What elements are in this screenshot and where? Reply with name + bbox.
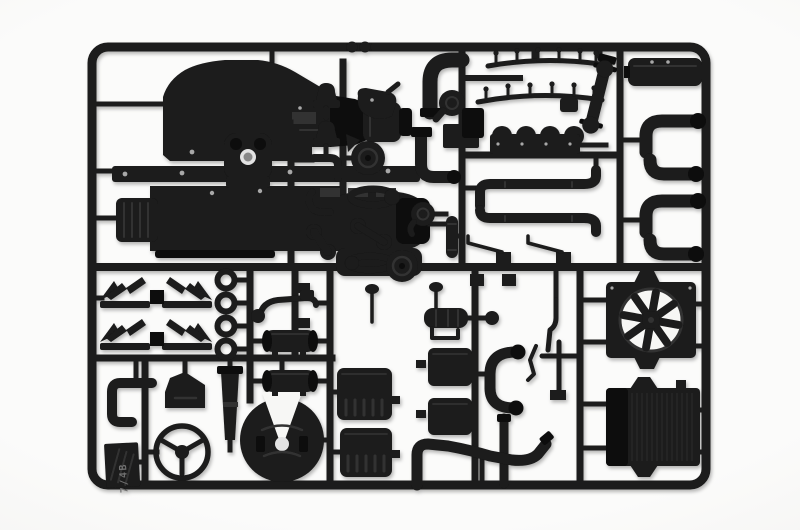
- air-tank-part: [262, 330, 318, 396]
- s-bend-exhaust-pipe-part: [417, 430, 555, 485]
- ball-joint-part: [476, 311, 499, 325]
- washer-ring-part: [218, 272, 235, 358]
- mud-flap-bracket-part: [100, 277, 212, 350]
- steering-wheel-part: [156, 426, 208, 478]
- brake-drum-part: [386, 250, 418, 282]
- down-pipe-part: [497, 414, 511, 484]
- air-dryer-cylinder-part: [446, 216, 458, 258]
- valve-cover-top-part: [624, 58, 702, 86]
- gear-lever-part: [468, 236, 571, 265]
- box-panel-part: [416, 348, 472, 435]
- battery-step-panel-part: [337, 368, 400, 477]
- valve-cover-part: [490, 126, 584, 154]
- sprue-illustration: 7/4B: [0, 0, 800, 530]
- intake-elbow-part: [646, 113, 706, 262]
- small-muffler-part: [424, 308, 474, 338]
- sprue-photo: 7/4B: [0, 0, 800, 530]
- exhaust-stack-part: [217, 366, 243, 450]
- exhaust-pipe-straight-part: [480, 170, 596, 232]
- drive-shaft-part: [577, 52, 620, 136]
- pipe-coupler-part: [346, 42, 372, 53]
- c-shaped-hose-part: [490, 345, 526, 416]
- sprue-tag-text: 7/4B: [118, 463, 131, 494]
- wiring-harness-part: [462, 47, 602, 138]
- linkage-cross-part: [528, 300, 579, 400]
- bracket-small-part: [470, 274, 516, 286]
- cab-mount-wedge-part: [165, 372, 205, 408]
- fifth-wheel-coupling-part: [240, 392, 324, 482]
- radiator-part: [606, 377, 700, 477]
- sprue-tag: 7/4B: [104, 442, 141, 494]
